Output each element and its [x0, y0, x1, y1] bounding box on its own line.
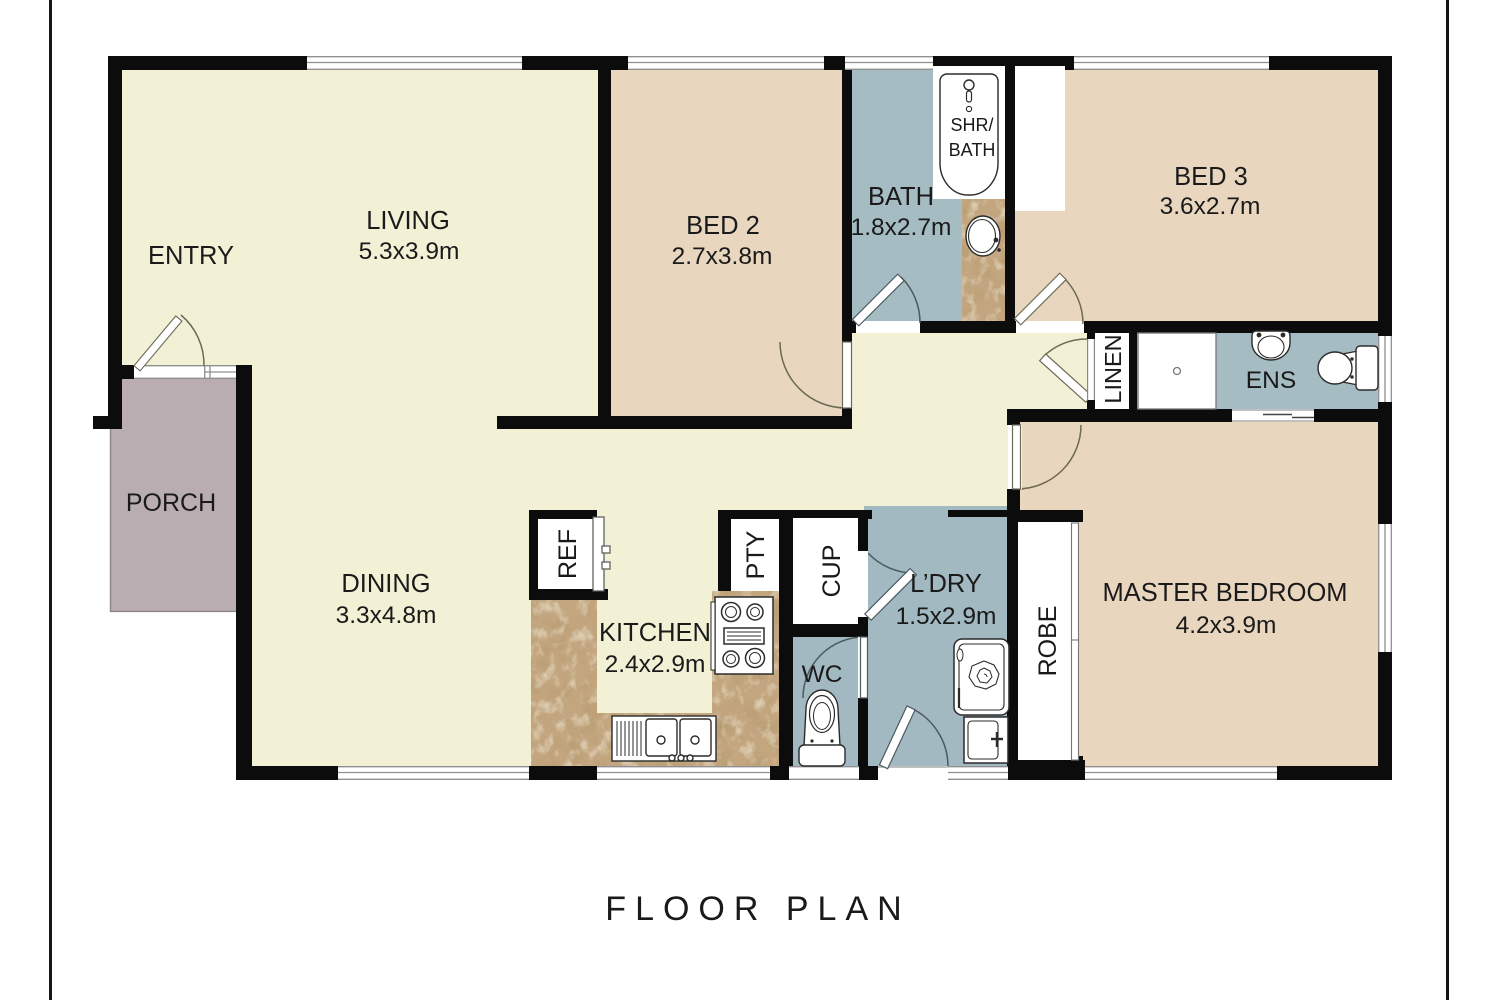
- svg-text:MASTER BEDROOM: MASTER BEDROOM: [1102, 579, 1347, 607]
- svg-text:ENS: ENS: [1246, 367, 1296, 394]
- svg-text:BATH: BATH: [949, 140, 996, 160]
- svg-text:2.7x3.8m: 2.7x3.8m: [672, 243, 773, 270]
- svg-text:PORCH: PORCH: [126, 489, 216, 517]
- svg-text:4.2x3.9m: 4.2x3.9m: [1176, 612, 1277, 639]
- svg-text:1.5x2.9m: 1.5x2.9m: [896, 603, 997, 630]
- svg-text:SHR/: SHR/: [950, 115, 993, 135]
- svg-text:1.8x2.7m: 1.8x2.7m: [851, 214, 952, 241]
- svg-text:BED 2: BED 2: [686, 212, 760, 240]
- svg-text:CUP: CUP: [818, 545, 846, 598]
- svg-text:KITCHEN: KITCHEN: [599, 619, 711, 647]
- svg-text:FLOOR PLAN: FLOOR PLAN: [605, 890, 910, 928]
- svg-text:3.6x2.7m: 3.6x2.7m: [1160, 193, 1261, 220]
- svg-text:LIVING: LIVING: [366, 207, 450, 235]
- svg-text:DINING: DINING: [341, 570, 430, 598]
- svg-text:REF: REF: [554, 529, 582, 579]
- svg-text:WC: WC: [802, 661, 843, 688]
- svg-text:3.3x4.8m: 3.3x4.8m: [336, 602, 437, 629]
- svg-text:L’DRY: L’DRY: [910, 570, 982, 598]
- svg-text:BED 3: BED 3: [1174, 163, 1248, 191]
- svg-text:5.3x3.9m: 5.3x3.9m: [359, 238, 460, 265]
- svg-text:PTY: PTY: [742, 530, 770, 579]
- svg-text:ENTRY: ENTRY: [148, 242, 234, 270]
- svg-text:LINEN: LINEN: [1100, 334, 1126, 403]
- svg-text:BATH: BATH: [868, 183, 934, 211]
- svg-text:ROBE: ROBE: [1034, 606, 1062, 677]
- svg-text:2.4x2.9m: 2.4x2.9m: [605, 651, 706, 678]
